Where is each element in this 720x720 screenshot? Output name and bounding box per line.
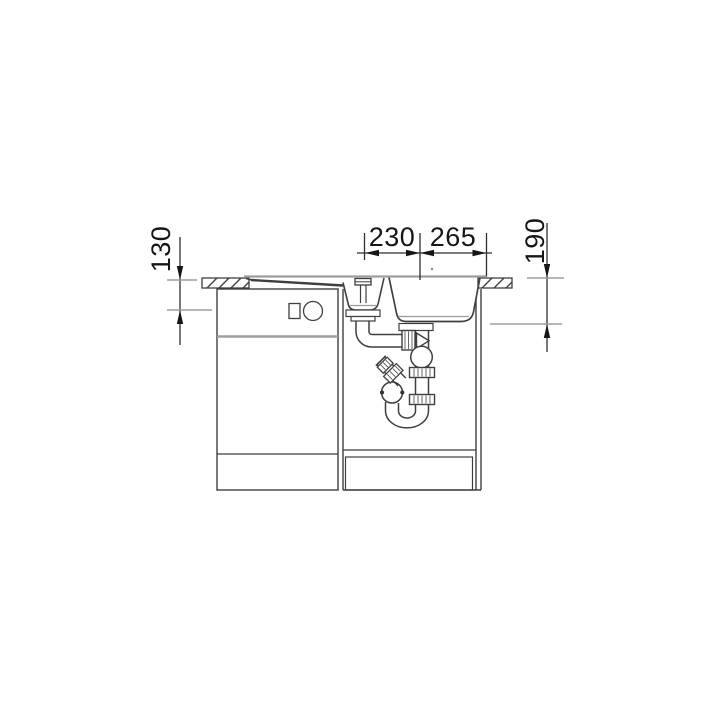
arrow-190-bottom (544, 324, 550, 338)
reference-dot (431, 268, 433, 270)
dimension-label-265: 265 (430, 222, 477, 252)
dimension-label-190: 190 (520, 218, 550, 265)
trap-upper-bend (411, 346, 433, 368)
drain-plumbing (346, 310, 435, 428)
elbow-union-nut (402, 331, 415, 351)
sink-installation-drawing: 230 265 130 190 (0, 0, 720, 720)
small-bowl-elbow-pipe (356, 321, 403, 347)
dimension-label-230: 230 (369, 222, 416, 252)
main-bowl (389, 278, 480, 322)
left-cabinet (217, 289, 338, 490)
trap-loop-bend (382, 382, 403, 403)
control-panel-square (289, 304, 300, 319)
pipe-collar-lower (410, 395, 435, 405)
trap-u-bend (386, 402, 429, 428)
trap-loop-dot-left (380, 390, 384, 394)
small-bowl-strainer-flange (346, 310, 380, 317)
countertop-left-hatching (207, 278, 249, 288)
trap-loop-dot-right (400, 390, 404, 394)
small-bowl-strainer-nut (351, 317, 375, 322)
drainboard-profile (251, 280, 343, 286)
dimension-label-130: 130 (146, 226, 176, 273)
arrow-190-top (544, 264, 550, 278)
countertop-right-hatching (482, 278, 512, 288)
main-bowl-strainer-flange (399, 324, 433, 331)
arrow-130-top (177, 266, 183, 280)
right-cabinet-drawer (346, 457, 473, 490)
technical-drawing-page: 230 265 130 190 (0, 0, 720, 720)
arrow-130-bottom (177, 310, 183, 324)
left-cabinet-body (217, 289, 338, 490)
control-panel-knob (304, 302, 323, 321)
pipe-collar-upper (410, 368, 435, 378)
